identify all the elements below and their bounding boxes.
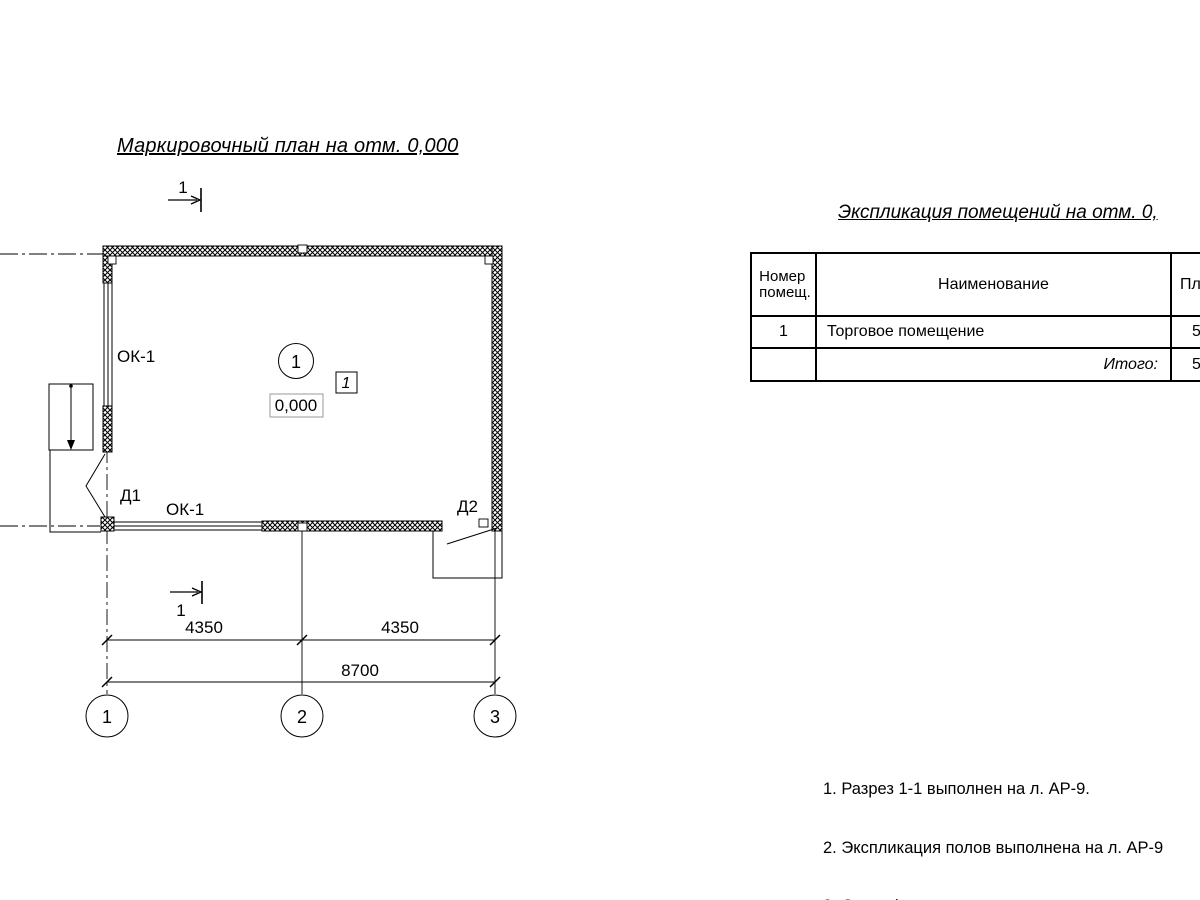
table-total-label: Итого: [817,349,1172,380]
grid-bubble-2: 2 [297,707,307,727]
section-marker-bottom [170,581,202,604]
section-marker-top-label: 1 [178,178,187,197]
table-header-area: Пло [1172,254,1200,317]
table-row-area: 5 [1172,317,1200,349]
table-row-number: 1 [752,317,817,349]
explication-table: Номерпомещ. Наименование Пло 1 Торговое … [750,252,1200,382]
label-door-2: Д2 [457,497,478,516]
explication-title: Экспликация помещений на отм. 0, [838,202,1158,224]
window-left [104,283,112,406]
table-header-room-number: Номерпомещ. [752,254,817,317]
dim-span-1: 4350 [185,618,223,637]
entrance-stairs [49,384,101,532]
door-2-leaf [447,528,497,544]
grid-bubble-1: 1 [102,707,112,727]
label-window-bottom: ОК-1 [166,500,204,519]
door-1-leaf [86,454,105,517]
porch-door-2 [433,531,502,578]
dim-span-2: 4350 [381,618,419,637]
elevation-mark: 0,000 [275,396,318,415]
table-row-name: Торговое помещение [817,317,1172,349]
label-window-left: ОК-1 [117,347,155,366]
label-door-1: Д1 [120,486,141,505]
note-line: 1. Разрез 1-1 выполнен на л. АР-9. [823,780,1163,800]
table-header-name: Наименование [817,254,1172,317]
grid-axis-lines [0,254,495,694]
floor-type-mark: 1 [342,375,351,392]
window-bottom [114,522,262,530]
grid-bubble-3: 3 [490,707,500,727]
room-number: 1 [291,352,301,372]
floor-plan-drawing: 1 1 4350 4350 8700 1 2 3 1 1 0,000 ОК-1 … [0,120,700,760]
walls-hatched [101,246,502,531]
table-total-number [752,349,817,380]
wall-notches [108,245,493,531]
table-total-area: 5 [1172,349,1200,380]
dimension-ticks [102,635,500,687]
dimension-lines [107,640,495,682]
note-line: 2. Экспликация полов выполнена на л. АР-… [823,839,1163,859]
notes-block: 1. Разрез 1-1 выполнен на л. АР-9. 2. Эк… [823,741,1163,900]
dim-total: 8700 [341,661,379,680]
